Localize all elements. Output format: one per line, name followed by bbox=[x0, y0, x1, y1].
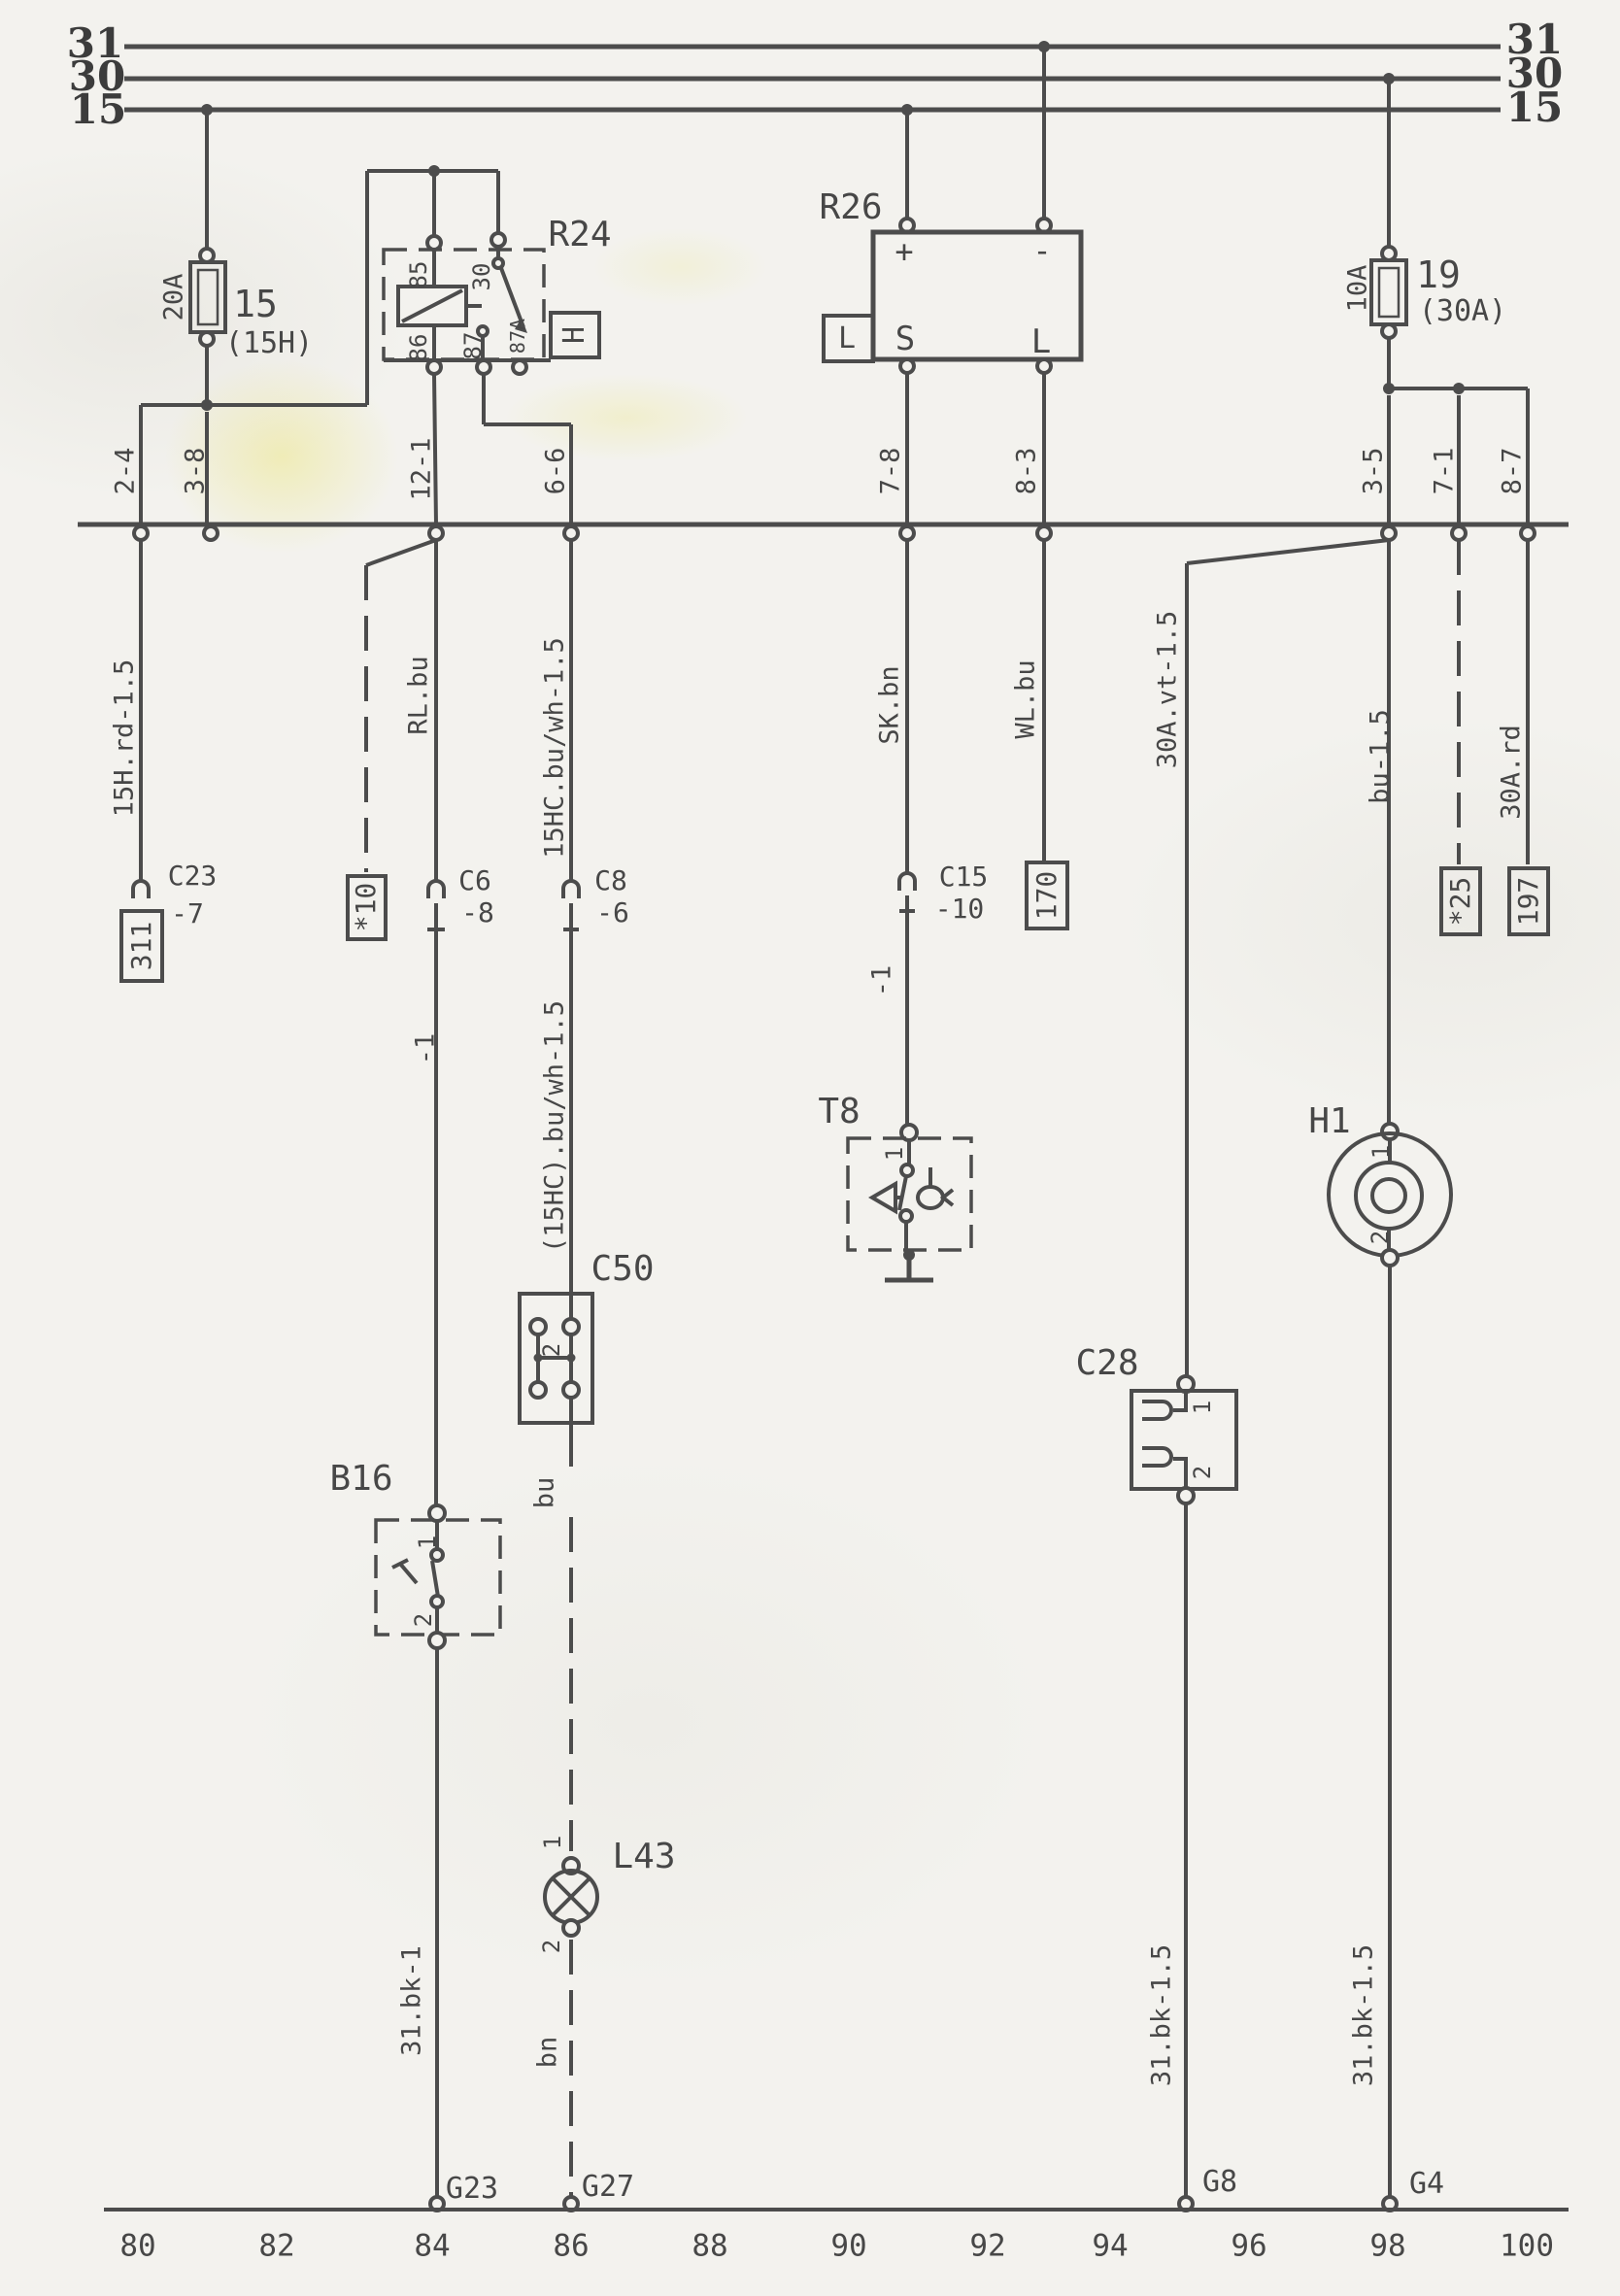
fuse19-alt: (30A) bbox=[1419, 297, 1506, 326]
column-star10 bbox=[348, 540, 436, 939]
conn-c23-pin: -7 bbox=[171, 900, 204, 928]
r26-pin-l: L bbox=[1031, 325, 1051, 358]
axis-tick-96: 96 bbox=[1231, 2232, 1266, 2262]
t8-pin-1: 1 bbox=[883, 1147, 906, 1161]
wire-label-30a-rd: 30A.rd bbox=[1499, 725, 1525, 820]
wire-label-minus1-b16: -1 bbox=[413, 1033, 439, 1065]
column-star25 bbox=[1441, 540, 1480, 934]
wire-label-31bk15-g4: 31.bk-1.5 bbox=[1351, 1944, 1377, 2086]
axis-tick-90: 90 bbox=[830, 2232, 866, 2262]
unit-c50-label: C50 bbox=[591, 1252, 654, 1287]
axis-tick-98: 98 bbox=[1369, 2232, 1405, 2262]
unit-l43-label: L43 bbox=[612, 1840, 675, 1874]
wire-label-bu: bu bbox=[532, 1477, 558, 1509]
b16-pin-1: 1 bbox=[416, 1536, 439, 1549]
ground-g8: G8 bbox=[1202, 2168, 1237, 2197]
r26-minus: - bbox=[1032, 235, 1051, 266]
wire-label-minus1-t8: -1 bbox=[869, 965, 895, 997]
l43-pin-1: 1 bbox=[541, 1836, 564, 1849]
connector-row-line bbox=[78, 524, 1569, 540]
h1-pin-1: 1 bbox=[1369, 1145, 1393, 1159]
c28-pin-1: 1 bbox=[1191, 1401, 1214, 1414]
column-b16 bbox=[376, 540, 500, 2211]
unit-h1-label: H1 bbox=[1308, 1104, 1350, 1139]
wiring-diagram-page: 31 30 15 31 30 15 20A 15 (15H) 10A 19 (3… bbox=[0, 0, 1620, 2296]
ground-g4: G4 bbox=[1409, 2170, 1444, 2199]
r24-pin-87: 87 bbox=[461, 332, 485, 360]
wire-label-rl-bu: RL.bu bbox=[406, 656, 432, 734]
unit-r26-label: R26 bbox=[819, 190, 882, 225]
wire-label-15h-rd: 15H.rd-1.5 bbox=[112, 659, 138, 818]
bus-lines bbox=[124, 41, 1501, 116]
wire-label-bn: bn bbox=[535, 2037, 561, 2069]
row-pin-2-4: 2-4 bbox=[113, 448, 139, 495]
fuse19-rating: 10A bbox=[1345, 265, 1371, 313]
dest-box-311: 311 bbox=[128, 922, 155, 971]
dest-box-10: *10 bbox=[353, 883, 380, 932]
dest-box-170: 170 bbox=[1033, 871, 1061, 921]
r24-pin-85: 85 bbox=[407, 261, 430, 289]
row-pin-7-1: 7-1 bbox=[1432, 448, 1458, 495]
unit-r26-symbol bbox=[824, 47, 1081, 524]
row-pin-7-8: 7-8 bbox=[878, 448, 904, 495]
fuse19-id: 19 bbox=[1416, 256, 1461, 293]
row-pin-3-5: 3-5 bbox=[1361, 448, 1387, 495]
unit-c28-label: C28 bbox=[1075, 1346, 1138, 1381]
axis-tick-100: 100 bbox=[1500, 2232, 1554, 2262]
row-pin-12-1: 12-1 bbox=[409, 437, 435, 500]
conn-c8-pin: -6 bbox=[596, 899, 629, 927]
bus-label-15-left: 15 bbox=[70, 89, 126, 130]
r26-plus: + bbox=[894, 236, 913, 267]
unit-t8-label: T8 bbox=[818, 1095, 860, 1130]
conn-c23-label: C23 bbox=[168, 862, 218, 890]
wire-label-bu-15: bu-1.5 bbox=[1367, 709, 1394, 804]
wire-label-31bk1: 31.bk-1 bbox=[399, 1945, 425, 2056]
wire-label-15hc2: (15HC).bu/wh-1.5 bbox=[542, 1000, 568, 1253]
b16-pin-2: 2 bbox=[412, 1613, 435, 1627]
axis-tick-80: 80 bbox=[119, 2232, 155, 2262]
row-pin-8-3: 8-3 bbox=[1014, 448, 1040, 495]
fuse15-id: 15 bbox=[233, 286, 278, 322]
wire-label-wl-bu: WL.bu bbox=[1013, 659, 1039, 738]
conn-c6-pin: -8 bbox=[461, 899, 494, 927]
r24-dest-h: H bbox=[560, 326, 590, 344]
fuse15-alt: (15H) bbox=[225, 329, 313, 358]
row-pin-3-8: 3-8 bbox=[183, 448, 209, 495]
l43-pin-2: 2 bbox=[540, 1940, 563, 1953]
conn-c15-pin: -10 bbox=[935, 895, 985, 923]
wire-label-15hc: 15HC.bu/wh-1.5 bbox=[542, 637, 568, 859]
c50-pin-2: 2 bbox=[540, 1343, 563, 1357]
unit-b16-label: B16 bbox=[329, 1462, 392, 1497]
r24-pin-86: 86 bbox=[407, 334, 430, 362]
axis-tick-82: 82 bbox=[258, 2232, 294, 2262]
h1-pin-2: 2 bbox=[1368, 1231, 1392, 1244]
ground-g23: G23 bbox=[446, 2175, 498, 2204]
axis-tick-94: 94 bbox=[1092, 2232, 1128, 2262]
axis-tick-86: 86 bbox=[553, 2232, 589, 2262]
wire-label-sk-bn: SK.bn bbox=[877, 665, 903, 744]
ground-g27: G27 bbox=[582, 2173, 634, 2202]
conn-c8-label: C8 bbox=[594, 867, 627, 895]
wire-label-31bk15-g8: 31.bk-1.5 bbox=[1149, 1944, 1175, 2086]
r24-pin-87a: 87A bbox=[508, 319, 527, 354]
conn-c6-label: C6 bbox=[458, 867, 491, 895]
fuse15-rating: 20A bbox=[161, 274, 187, 321]
axis-tick-84: 84 bbox=[414, 2232, 450, 2262]
relay-r24-label: R24 bbox=[548, 218, 611, 253]
dest-box-197: 197 bbox=[1515, 877, 1542, 927]
bus-label-15-right: 15 bbox=[1506, 87, 1563, 128]
row-pin-6-6: 6-6 bbox=[543, 448, 569, 495]
r24-pin-30: 30 bbox=[470, 263, 493, 291]
c28-pin-2: 2 bbox=[1191, 1466, 1214, 1479]
dest-box-25: *25 bbox=[1447, 877, 1474, 927]
axis-tick-88: 88 bbox=[692, 2232, 727, 2262]
r26-side-l: L bbox=[838, 324, 856, 354]
conn-c15-label: C15 bbox=[939, 863, 989, 891]
axis-tick-92: 92 bbox=[969, 2232, 1005, 2262]
row-pin-8-7: 8-7 bbox=[1500, 448, 1526, 495]
r26-pin-s: S bbox=[895, 322, 915, 355]
wire-label-30a-vt: 30A.vt-1.5 bbox=[1155, 611, 1181, 769]
